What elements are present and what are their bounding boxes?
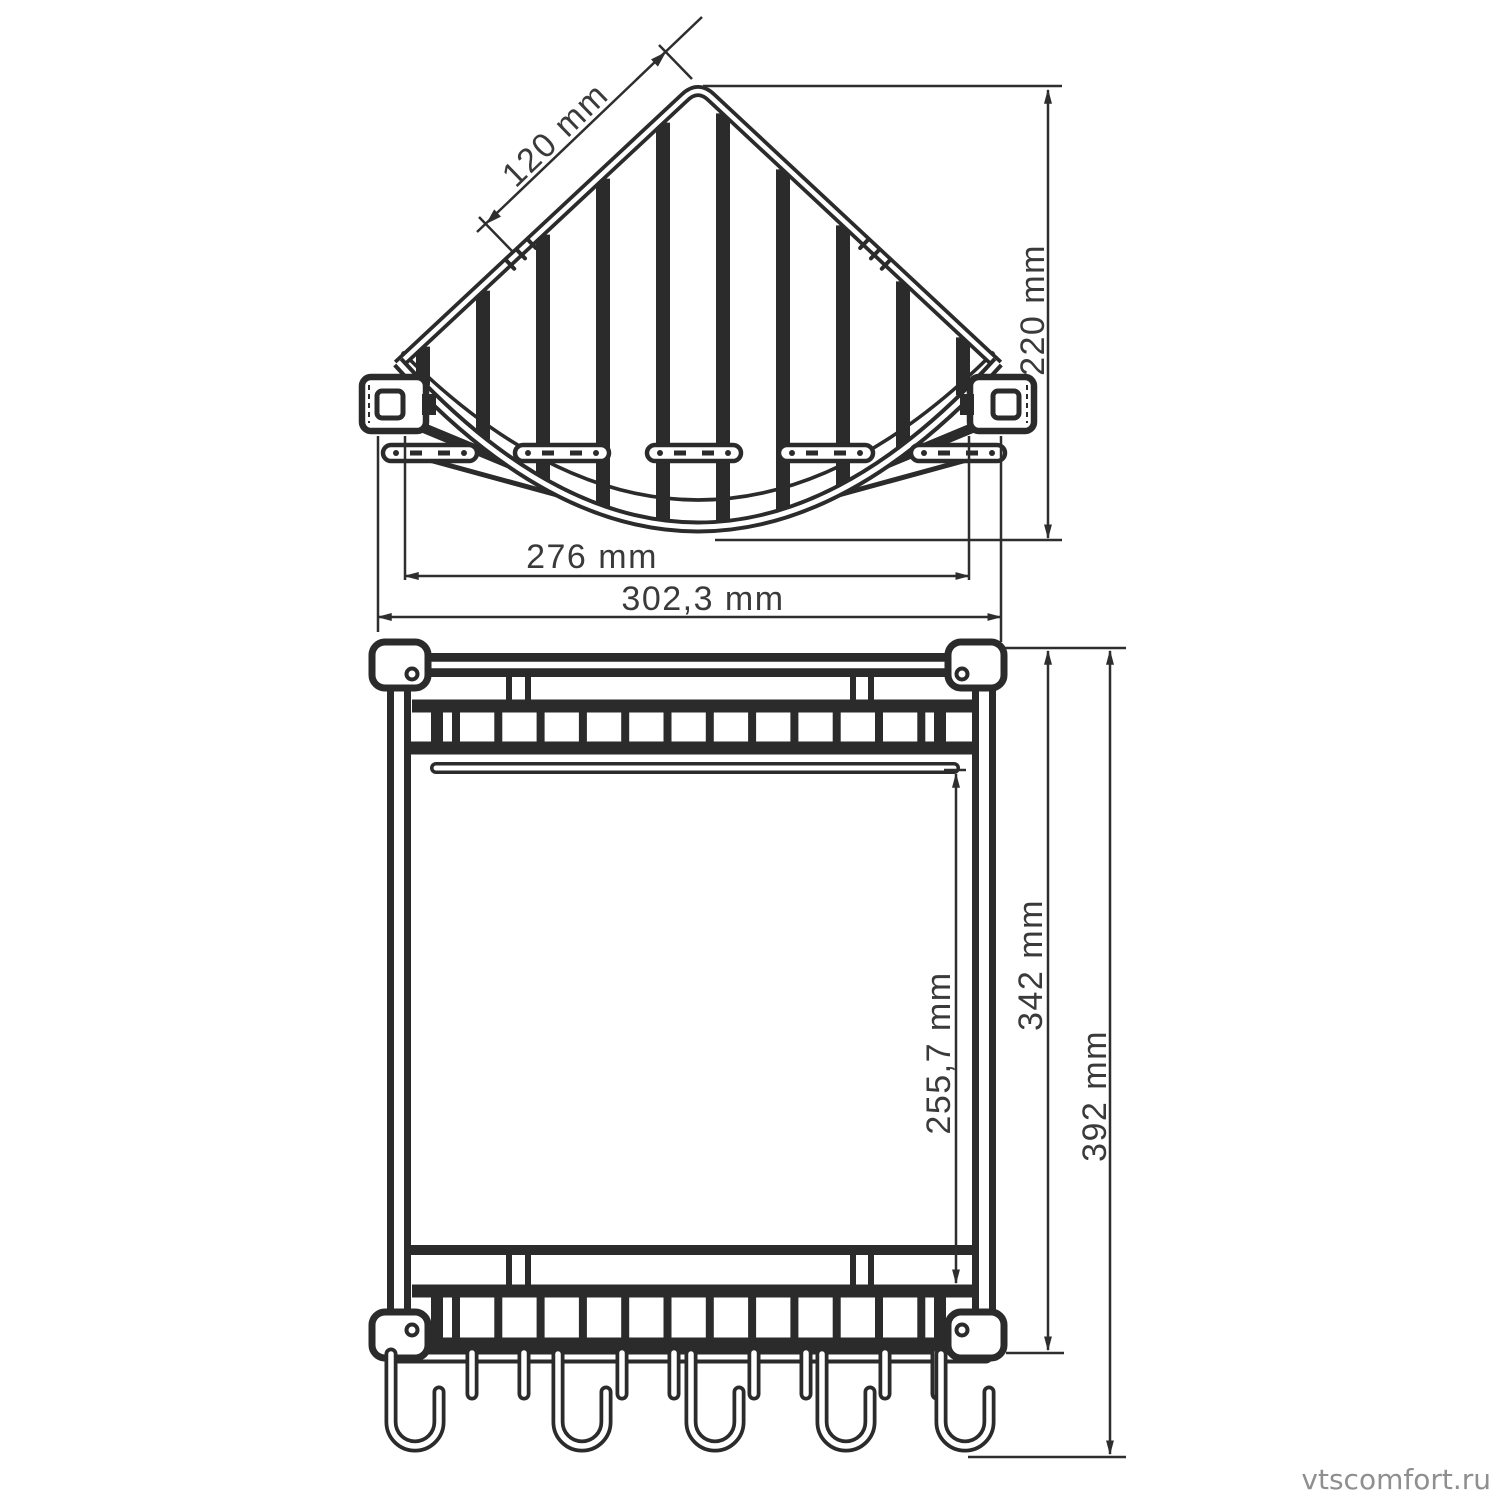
j-hook	[822, 1354, 870, 1446]
plate-hole	[857, 450, 863, 456]
bracket-tab	[960, 394, 974, 415]
plate-hole	[989, 450, 995, 456]
bracket-body	[970, 377, 1034, 431]
dim-tick	[479, 217, 512, 251]
shelf-grid	[456, 1295, 921, 1340]
plate-slot	[674, 451, 686, 456]
plate-hole	[593, 450, 599, 456]
plate-slot	[702, 451, 714, 456]
wall-bracket-left	[362, 377, 436, 431]
corner-bracket-bottom-right	[948, 1312, 1004, 1358]
upper-shelf	[406, 674, 978, 768]
plate-hole	[725, 450, 731, 456]
dim-tick	[659, 45, 692, 79]
front-view	[372, 642, 1004, 1446]
plate-hole	[789, 450, 795, 456]
wire-end-marks	[506, 239, 890, 268]
dimension-labels: 120 mm 220 mm 276 mm 302,3 mm 255,7 mm 3…	[495, 76, 1114, 1162]
bracket-body	[362, 377, 426, 431]
j-hook	[391, 1354, 439, 1446]
plate-slot	[570, 451, 582, 456]
lower-shelf	[406, 1250, 978, 1344]
plate-slot	[542, 451, 554, 456]
j-hook	[558, 1354, 606, 1446]
mounting-plates	[383, 445, 1005, 461]
plate-slot	[938, 451, 950, 456]
wall-bracket-right	[960, 377, 1034, 431]
towel-hooks	[391, 1354, 989, 1446]
dim-label-255mm: 255,7 mm	[920, 971, 958, 1134]
dim-label-276mm: 276 mm	[526, 538, 658, 576]
watermark-text: vtscomfort.ru	[1301, 1463, 1491, 1496]
dim-label-342mm: 342 mm	[1012, 899, 1050, 1031]
dim-label-302mm: 302,3 mm	[621, 580, 784, 618]
j-hook	[691, 1354, 739, 1446]
plate-slot	[438, 451, 450, 456]
plate-hole	[393, 450, 399, 456]
plate-hole	[525, 450, 531, 456]
corner-bracket-bottom-left	[372, 1312, 428, 1358]
plate-hole	[657, 450, 663, 456]
corner-bracket-top-right	[948, 642, 1004, 688]
plate-slot	[806, 451, 818, 456]
plate-slot	[834, 451, 846, 456]
corner-bracket-top-left	[372, 642, 428, 688]
corner-shelf-drawing: 120 mm 220 mm 276 mm 302,3 mm 255,7 mm 3…	[0, 0, 1503, 1503]
technical-drawing-page: 120 mm 220 mm 276 mm 302,3 mm 255,7 mm 3…	[0, 0, 1503, 1503]
bracket-tab	[422, 394, 436, 415]
plate-hole	[921, 450, 927, 456]
dim-label-392mm: 392 mm	[1076, 1030, 1114, 1162]
dim-label-220mm: 220 mm	[1014, 244, 1052, 376]
plate-slot	[410, 451, 422, 456]
top-view	[362, 91, 1034, 527]
plate-hole	[461, 450, 467, 456]
j-hook	[941, 1354, 989, 1446]
